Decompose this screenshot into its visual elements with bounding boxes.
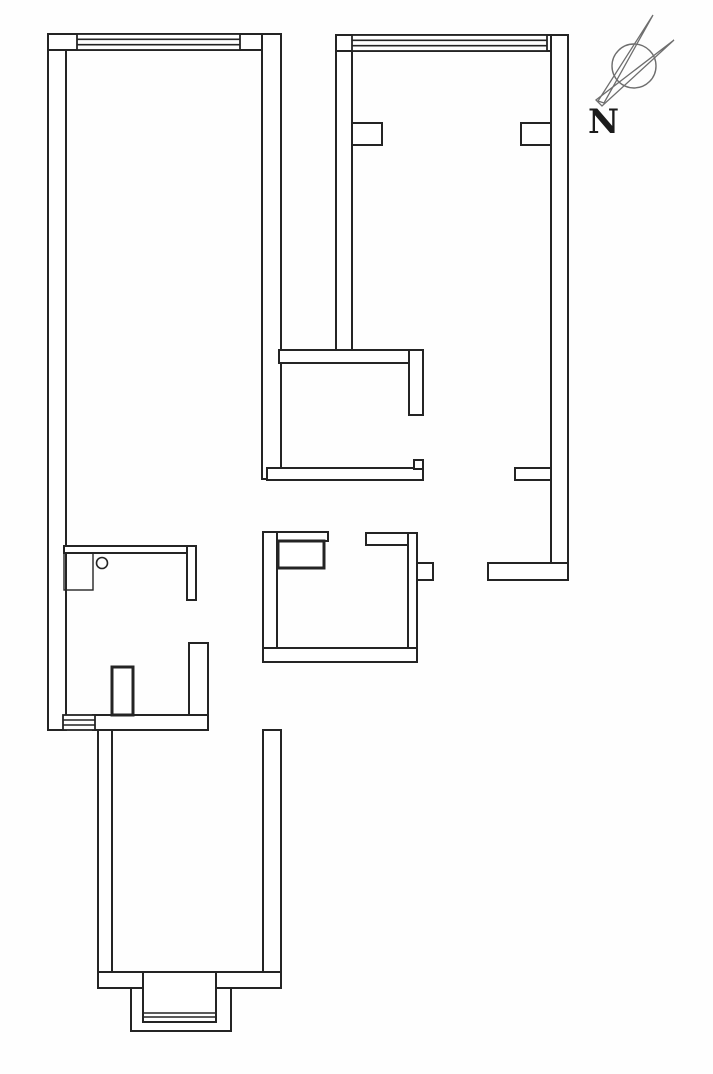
middle-lower-horizontal-wall (267, 468, 423, 480)
kitchen-counter-fixture (278, 541, 324, 568)
bathroom-bottom-wall (93, 715, 208, 730)
middle-upper-horizontal-wall (279, 350, 423, 363)
right-exterior-wall (551, 35, 568, 580)
right-room-right-pier (521, 123, 551, 145)
entry-door-leaf (112, 667, 133, 715)
bathroom-cabinet (64, 553, 93, 590)
right-room-bottom-wall (488, 563, 568, 580)
right-room-left-pier (352, 123, 382, 145)
left-room-right-wall (262, 34, 281, 479)
bathroom-drain-circle (97, 558, 108, 569)
compass-circle (612, 44, 656, 88)
kitchen-bottom-wall (263, 648, 417, 662)
balcony-bottom-wall-left (98, 972, 143, 988)
bathroom-top-wall (64, 546, 196, 553)
floor-plan-page: { "floorplan": { "canvas": { "width": 71… (0, 0, 713, 1074)
compass-needle-icon (598, 15, 653, 103)
balcony-bottom-wall-right (216, 972, 281, 988)
bathroom-right-wall-upper (187, 546, 196, 600)
window-bottom-left (63, 715, 95, 730)
floor-plan: N (0, 0, 713, 1074)
right-wall-stub (515, 468, 551, 480)
kitchen-left-wall (263, 532, 277, 662)
middle-vertical-wall (409, 350, 423, 415)
right-room-left-wall (336, 35, 352, 350)
compass-north-label: N (588, 102, 619, 142)
balcony-right-wall (263, 730, 281, 988)
window-top-right-room (352, 35, 547, 51)
door-jamb-hook (414, 460, 423, 469)
kitchen-right-pier (417, 563, 433, 580)
left-exterior-wall (48, 34, 66, 730)
bay-window-inner (143, 972, 216, 1022)
balcony-left-wall (98, 730, 112, 988)
window-top-left-room (77, 34, 240, 50)
kitchen-right-wall (408, 533, 417, 662)
floor-plan-svg: N (0, 0, 713, 1074)
